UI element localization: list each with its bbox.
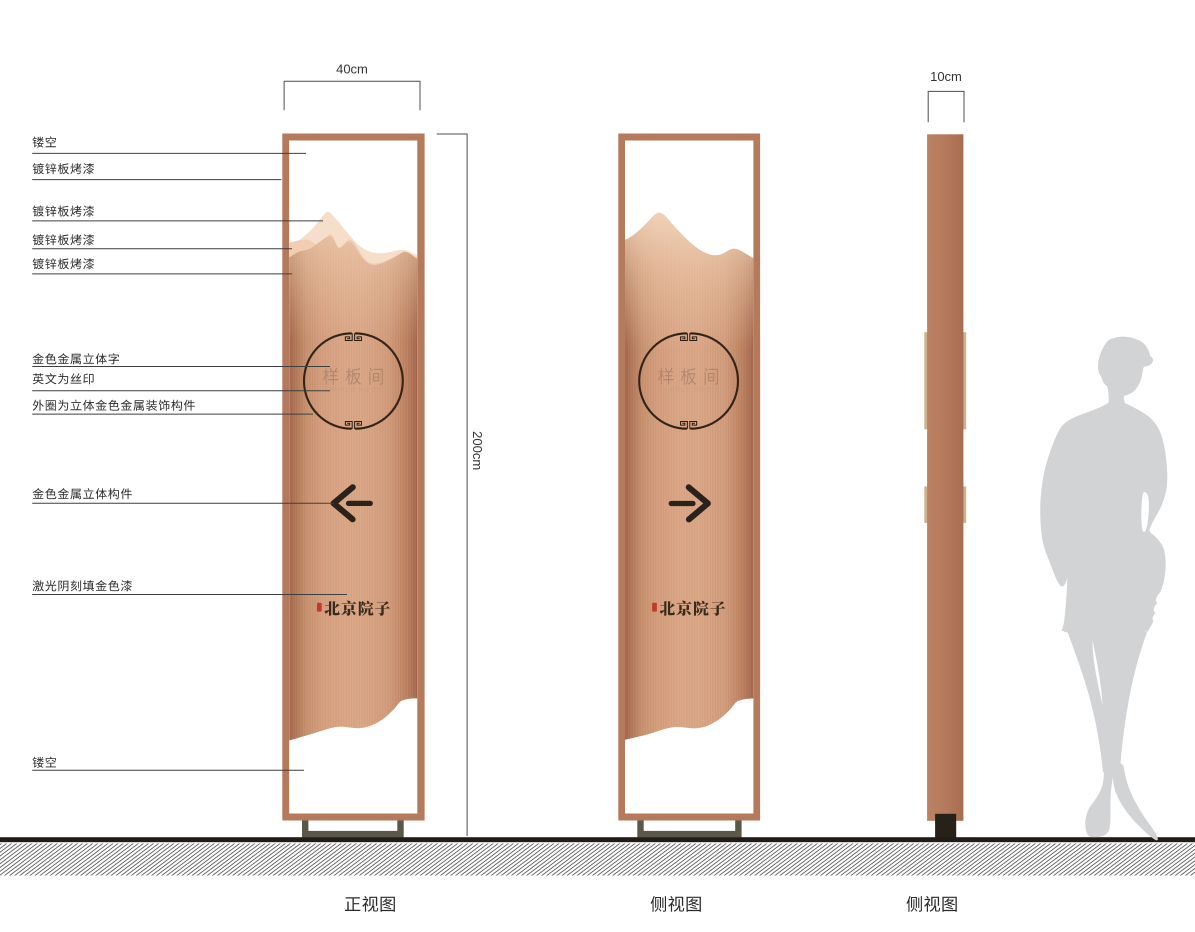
svg-text:10cm: 10cm bbox=[930, 69, 962, 84]
svg-text:40cm: 40cm bbox=[336, 62, 368, 77]
svg-text:SAMPLE ROOM: SAMPLE ROOM bbox=[323, 388, 383, 394]
svg-text:SAMPLE ROOM: SAMPLE ROOM bbox=[659, 388, 719, 394]
svg-text:200cm: 200cm bbox=[470, 431, 485, 470]
